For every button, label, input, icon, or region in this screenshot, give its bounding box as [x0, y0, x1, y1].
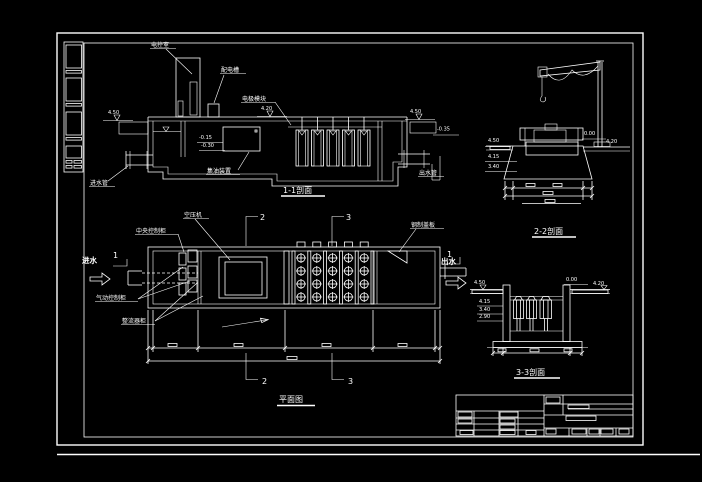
modules-3-3 — [514, 297, 552, 332]
steel-cover-hatch — [388, 251, 407, 263]
left-revision-strip — [64, 42, 83, 172]
mark-2-top: 2 — [260, 213, 265, 222]
label-central-cabinet: 中央控制柜 — [136, 227, 166, 235]
plan-view: 进水 出水 1 1 2 3 2 3 空压机 中央控制柜 气动控制柜 — [82, 211, 466, 406]
oil-collector-box — [223, 127, 260, 151]
elev-3-3-ground-right: 4.20 — [593, 281, 604, 287]
inflow-label: 进水 — [82, 255, 97, 265]
label-inlet-pipe: 进水管 — [90, 179, 108, 187]
ground-hatch-left — [119, 122, 148, 134]
crane-hook — [540, 96, 545, 102]
drawing-frame — [57, 33, 700, 455]
compressor-outline — [219, 257, 267, 298]
concrete-fill — [504, 146, 592, 179]
dimensions-2-2 — [503, 181, 594, 204]
section-2-2-title: 2-2剖面 — [534, 226, 563, 236]
dimensions-3-3 — [491, 348, 584, 356]
elev-2-2-left-1: 4.50 — [488, 138, 499, 144]
wall-left-3-3 — [503, 285, 510, 342]
elev-water-2: -0.30 — [201, 143, 214, 149]
elev-2-2-left-3: 3.40 — [488, 164, 499, 170]
slope-arrow — [222, 318, 268, 327]
section-marks-plan: 1 1 2 3 2 3 — [113, 213, 460, 386]
electrode-modules-1-1 — [288, 117, 382, 181]
inflow-arrow — [90, 273, 110, 285]
label-steel-cover: 钢制盖板 — [411, 221, 435, 229]
ground-hatch-right — [410, 122, 436, 133]
section-3-3: 4.50 0.00 4.20 4.15 3.40 2.90 3-3剖面 — [470, 277, 610, 378]
dimensions-plan — [146, 310, 442, 364]
label-electrode-module: 电极模块 — [242, 95, 266, 103]
elev-3-3-left-1: 4.15 — [479, 299, 490, 305]
inlet-pipe-plan — [128, 271, 198, 285]
equipment-body — [526, 142, 578, 155]
section-2-2: 4.50 4.15 3.40 0.00 4.20 2-2剖面 — [485, 61, 630, 237]
red-marker-dot — [255, 130, 257, 132]
elev-3-3-left-2: 3.40 — [479, 307, 490, 313]
elev-2-2-left-2: 4.15 — [488, 154, 499, 160]
plan-title: 平面图 — [279, 395, 303, 404]
section-1-1-title: 1-1剖面 — [283, 185, 312, 195]
inlet-pipe-1-1 — [126, 151, 153, 169]
control-room-cabinet — [176, 58, 200, 117]
label-air-compressor: 空压机 — [184, 211, 202, 219]
elev-pipe-invert-1-1: -0.35 — [437, 127, 450, 133]
label-pneumatic-cabinet: 气动控制柜 — [96, 294, 126, 302]
mark-2-bottom: 2 — [262, 377, 267, 386]
elev-3-3-left-3: 2.90 — [479, 314, 490, 320]
label-rectifier-cabinet: 整流器柜 — [122, 317, 146, 325]
elev-3-3-wall-top: 0.00 — [566, 277, 577, 283]
elev-2-2-right-2: 4.20 — [606, 139, 617, 145]
section-3-3-title: 3-3剖面 — [516, 367, 545, 377]
mark-1-right: 1 — [447, 250, 452, 259]
cabinets-plan — [179, 250, 197, 295]
section-1-1: 电控室 配电槽 电极模块 集油装置 进水管 出水管 4.50 4.20 4.50… — [89, 41, 459, 196]
cad-drawing-svg: 电控室 配电槽 电极模块 集油装置 进水管 出水管 4.50 4.20 4.50… — [0, 0, 702, 482]
label-power-trough: 配电槽 — [221, 66, 239, 74]
outlet-pipe-plan — [440, 265, 466, 279]
mark-3-top: 3 — [346, 213, 351, 222]
label-control-room: 电控室 — [151, 41, 169, 49]
label-outlet-pipe: 出水管 — [419, 169, 437, 177]
base-slab-3-3 — [493, 342, 582, 348]
elev-2-2-right-1: 0.00 — [584, 131, 595, 137]
title-block-text-blobs — [458, 397, 629, 435]
mark-1-left: 1 — [113, 251, 118, 260]
elev-water-1: -0.15 — [199, 135, 212, 141]
power-trough-box — [208, 104, 219, 117]
compressor-fins — [225, 262, 262, 295]
wall-right-3-3 — [563, 285, 570, 342]
cad-drawing-canvas: 电控室 配电槽 电极模块 集油装置 进水管 出水管 4.50 4.20 4.50… — [0, 0, 702, 482]
title-block-grid — [456, 395, 633, 436]
mark-3-bottom: 3 — [348, 377, 353, 386]
title-block — [456, 395, 633, 436]
outflow-arrow — [446, 277, 466, 289]
label-oil-collector: 集油装置 — [207, 167, 231, 175]
